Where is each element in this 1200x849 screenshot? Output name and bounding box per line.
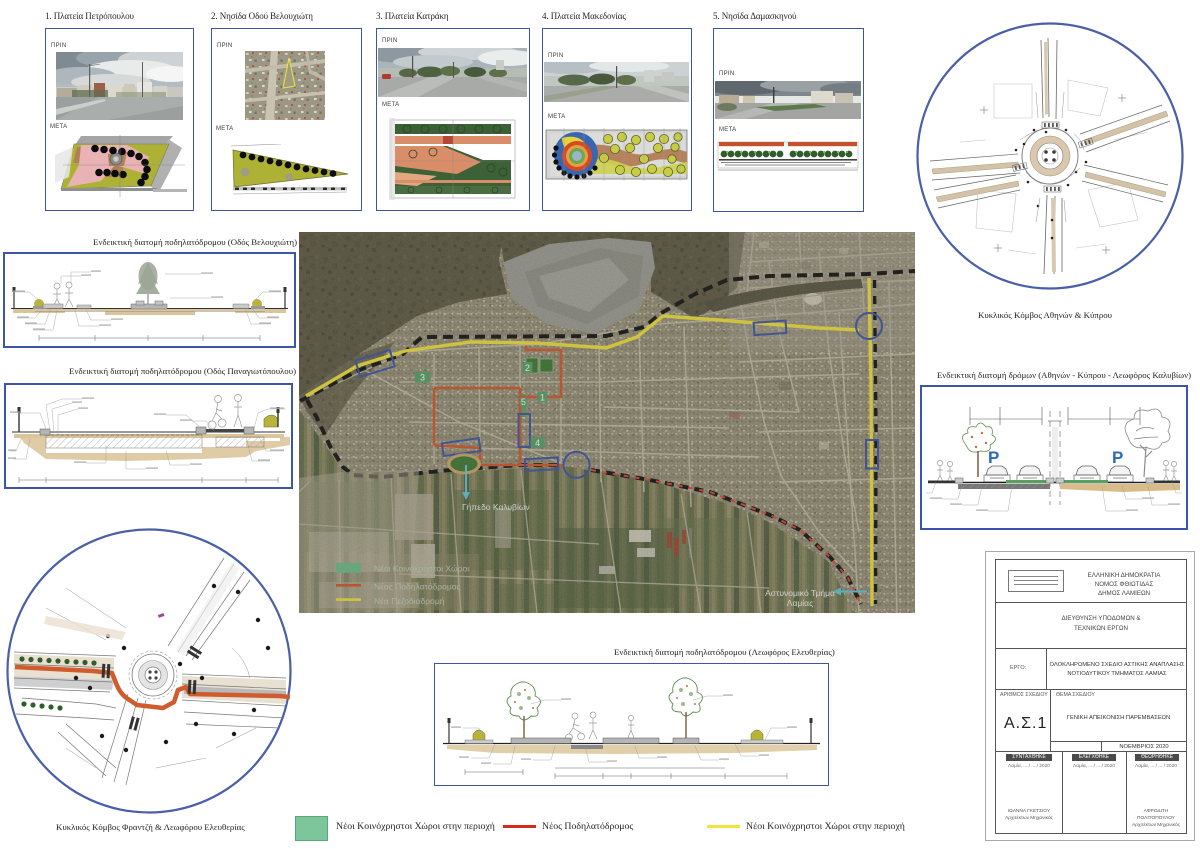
svg-text:P: P (988, 448, 999, 467)
svg-text:P: P (1112, 448, 1123, 467)
